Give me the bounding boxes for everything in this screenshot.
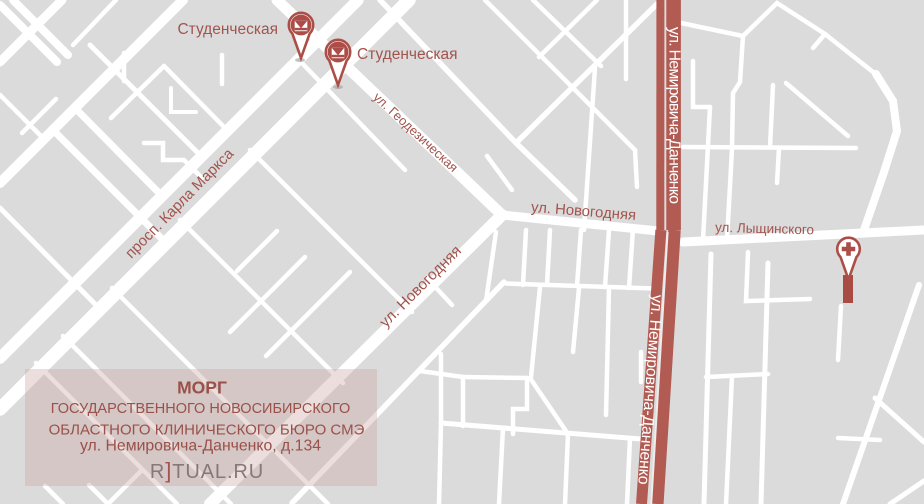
- svg-text:ул. Немировича-Данченко: ул. Немировича-Данченко: [665, 27, 682, 204]
- svg-text:R]TUAL.RU: R]TUAL.RU: [150, 458, 264, 483]
- svg-text:Студенческая: Студенческая: [357, 46, 458, 63]
- svg-text:ул. Немировича-Данченко, д.134: ул. Немировича-Данченко, д.134: [80, 438, 321, 455]
- svg-text:ул. Лыщинского: ул. Лыщинского: [715, 220, 814, 238]
- svg-text:ГОСУДАРСТВЕННОГО НОВОСИБИРСКОГ: ГОСУДАРСТВЕННОГО НОВОСИБИРСКОГО: [51, 401, 351, 417]
- svg-text:Студенческая: Студенческая: [177, 21, 278, 38]
- svg-text:ОБЛАСТНОГО КЛИНИЧЕСКОГО БЮРО С: ОБЛАСТНОГО КЛИНИЧЕСКОГО БЮРО СМЭ: [49, 422, 365, 439]
- svg-text:МОРГ: МОРГ: [177, 378, 227, 398]
